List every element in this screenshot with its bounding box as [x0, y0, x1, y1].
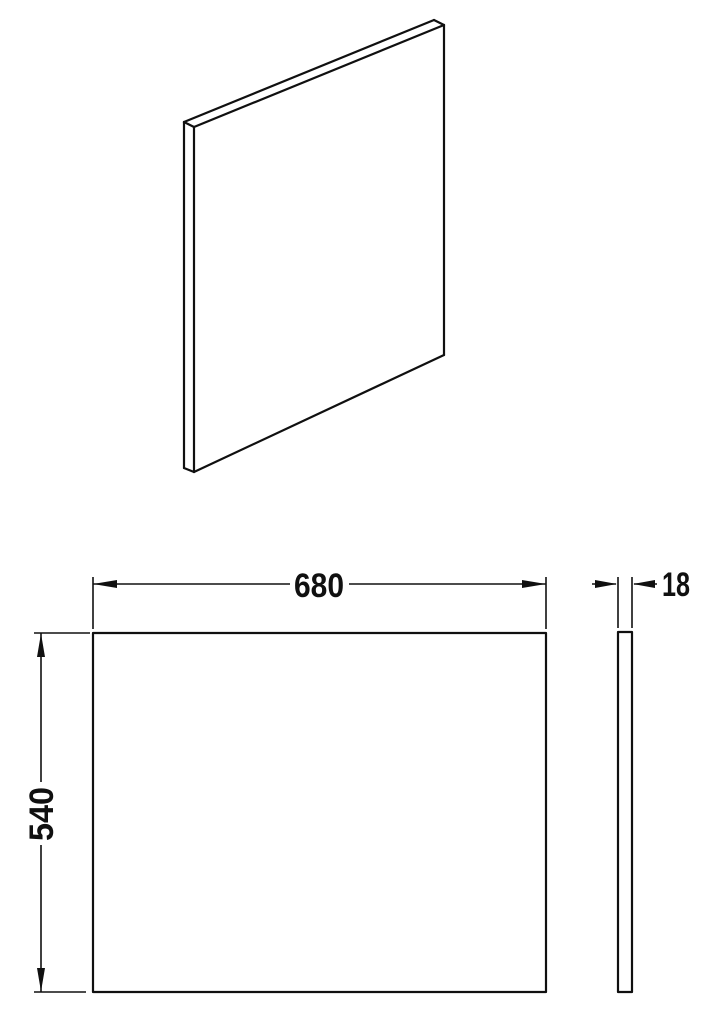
- panel-front-top-edge: [194, 25, 444, 127]
- arrowhead-left: [93, 580, 117, 588]
- panel-top-left-cap: [184, 122, 194, 127]
- side-view-outline: [618, 632, 632, 992]
- width-dimension: 680: [93, 567, 546, 629]
- panel-back-top-edge: [184, 20, 434, 122]
- technical-drawing-canvas: 680 540 18: [0, 0, 724, 1024]
- arrowhead-up: [37, 634, 45, 658]
- thickness-dimension: 18: [592, 566, 690, 628]
- drawing-sheet: 680 540 18: [0, 0, 724, 1024]
- isometric-view: [184, 20, 444, 472]
- arrowhead-down: [37, 968, 45, 992]
- front-view: [93, 633, 546, 992]
- arrowhead-left: [633, 580, 655, 588]
- arrowhead-right: [595, 580, 617, 588]
- side-view: [618, 632, 632, 992]
- arrowhead-right: [522, 580, 546, 588]
- thickness-dimension-label: 18: [662, 566, 690, 604]
- panel-bottom-edge: [194, 355, 444, 472]
- front-view-outline: [93, 633, 546, 992]
- height-dimension: 540: [23, 633, 90, 992]
- width-dimension-label: 680: [294, 567, 344, 605]
- panel-top-right-cap: [434, 20, 444, 25]
- panel-bottom-left-cap: [184, 468, 194, 472]
- height-dimension-label: 540: [23, 787, 61, 841]
